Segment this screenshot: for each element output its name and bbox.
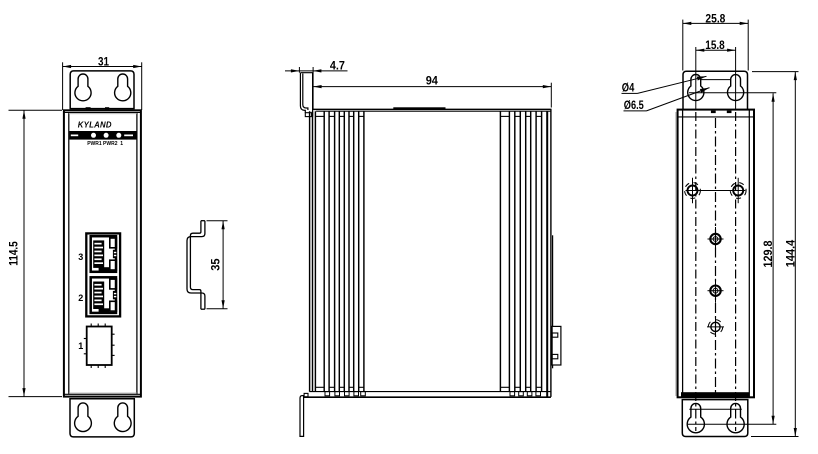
svg-text:15.8: 15.8 (705, 38, 725, 52)
svg-text:129.8: 129.8 (761, 240, 775, 267)
svg-text:PWR1 PWR2 1: PWR1 PWR2 1 (87, 141, 123, 147)
svg-text:Ø4: Ø4 (622, 80, 635, 94)
svg-text:31: 31 (98, 54, 109, 68)
svg-text:3: 3 (78, 252, 83, 262)
svg-text:35: 35 (209, 258, 223, 271)
svg-text:KYLAND: KYLAND (78, 121, 112, 130)
svg-text:1: 1 (78, 341, 83, 351)
svg-text:114.5: 114.5 (7, 241, 21, 266)
svg-text:Ø6.5: Ø6.5 (624, 98, 644, 112)
svg-text:144.4: 144.4 (783, 239, 797, 267)
svg-text:2: 2 (78, 293, 83, 303)
svg-text:4.7: 4.7 (330, 58, 345, 72)
svg-text:94: 94 (426, 74, 438, 88)
svg-text:25.8: 25.8 (705, 11, 725, 25)
